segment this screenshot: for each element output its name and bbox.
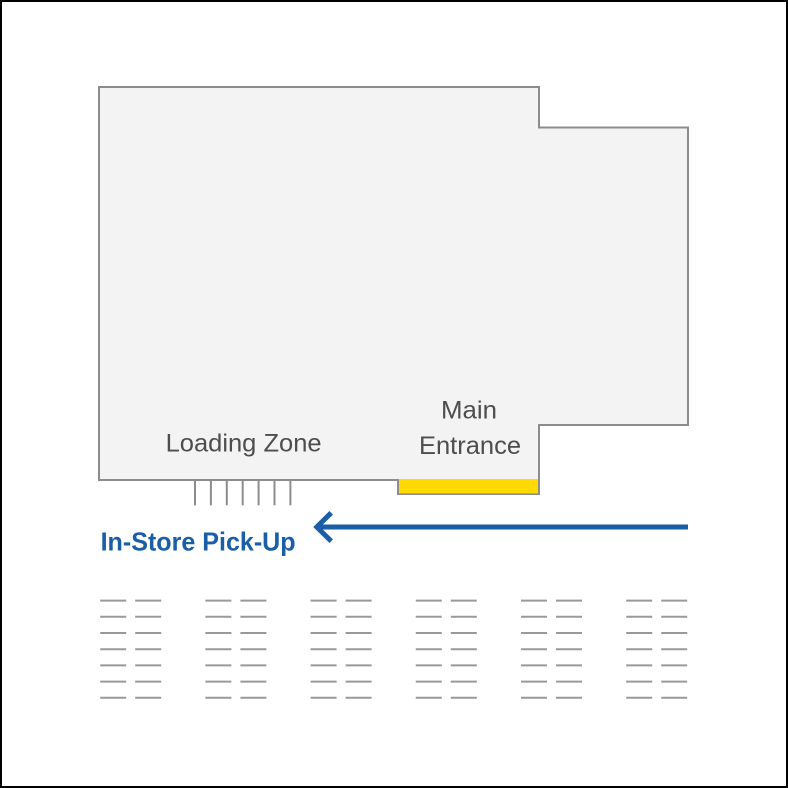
svg-text:Loading Zone: Loading Zone bbox=[166, 429, 322, 457]
svg-text:In-Store Pick-Up: In-Store Pick-Up bbox=[101, 527, 296, 557]
svg-text:Entrance: Entrance bbox=[419, 432, 521, 460]
svg-text:Main: Main bbox=[441, 397, 497, 425]
